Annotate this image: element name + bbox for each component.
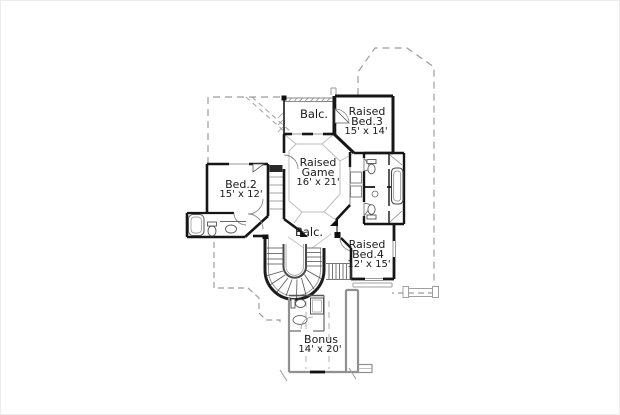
- toilet-tank: [208, 222, 217, 226]
- toilet: [208, 226, 216, 236]
- chimney-marks: [331, 88, 336, 95]
- toilet-tank: [367, 160, 376, 164]
- toilet-tank: [291, 299, 295, 308]
- bed4-step-ledge: [353, 283, 392, 287]
- label-bed2-dims: 15' x 12': [219, 190, 262, 200]
- label-game-dims: 16' x 21': [296, 178, 339, 188]
- game-door-arc: [284, 155, 298, 169]
- right-eave-detail: [403, 287, 439, 298]
- toilet: [368, 164, 375, 174]
- hall-post: [335, 232, 341, 238]
- label-bed4-dims: 12' x 15': [347, 260, 390, 270]
- label-balcony-top: Balc.: [300, 109, 328, 120]
- bathtub: [392, 168, 404, 204]
- label-bed3-dims: 15' x 14': [344, 127, 387, 137]
- spiral-staircase: [253, 236, 324, 300]
- toilet: [368, 205, 375, 215]
- stair-jamb: [263, 235, 269, 240]
- bonus-stoop: [358, 365, 372, 373]
- bed2-door-leaf: [253, 164, 264, 172]
- sink: [226, 225, 237, 233]
- bed2-closet: [269, 165, 283, 209]
- balcony-post: [282, 96, 287, 101]
- label-balcony-bottom: Balc.: [295, 227, 323, 238]
- roof-tick-marks: [280, 368, 356, 381]
- toilet-tank: [367, 215, 376, 219]
- floor-plan-image: Balc. Raised Bed.3 15' x 14' Raised Game…: [0, 0, 620, 415]
- label-bonus-dims: 14' x 20': [298, 345, 341, 355]
- bed2-bathroom-fixtures: [189, 215, 247, 237]
- sink: [372, 191, 378, 197]
- toilet: [296, 300, 306, 308]
- bath-fixtures: [367, 160, 403, 220]
